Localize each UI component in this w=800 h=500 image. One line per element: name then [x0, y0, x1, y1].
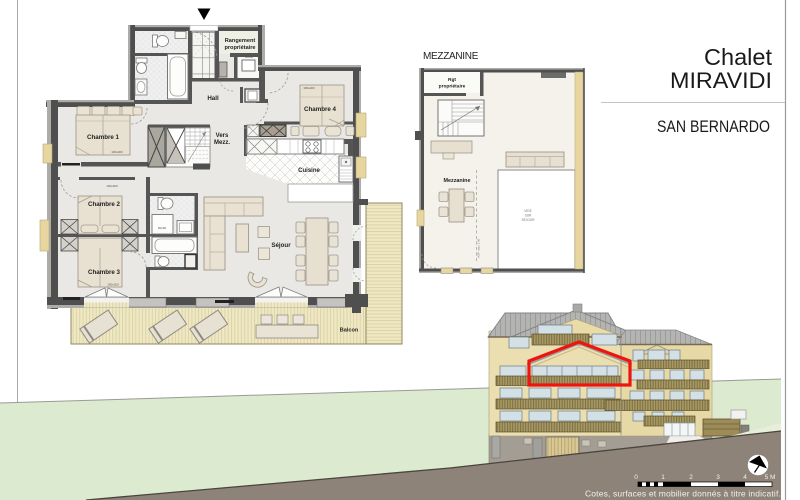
- svg-text:3: 3: [716, 474, 720, 481]
- svg-text:Cotes, surfaces et mobilier do: Cotes, surfaces et mobilier donnés à tit…: [585, 489, 781, 499]
- svg-text:180x200: 180x200: [303, 86, 315, 90]
- svg-text:4: 4: [743, 474, 747, 481]
- svg-text:SEJOUR: SEJOUR: [522, 218, 536, 222]
- svg-text:190x200: 190x200: [111, 150, 123, 154]
- svg-text:90x90: 90x90: [158, 226, 167, 230]
- svg-text:190x200: 190x200: [106, 184, 118, 188]
- svg-text:Rgt: Rgt: [448, 77, 456, 83]
- svg-text:propriétaire: propriétaire: [224, 45, 255, 51]
- svg-text:propriétaire: propriétaire: [439, 84, 466, 90]
- svg-text:HSP max 1.50: HSP max 1.50: [477, 238, 481, 258]
- svg-text:5 M: 5 M: [765, 474, 776, 481]
- svg-text:SAN BERNARDO: SAN BERNARDO: [657, 117, 770, 136]
- svg-text:Mezz.: Mezz.: [214, 140, 230, 146]
- svg-text:MIRAVIDI: MIRAVIDI: [670, 68, 772, 93]
- svg-text:Chambre 1: Chambre 1: [87, 134, 120, 141]
- svg-text:2: 2: [689, 474, 693, 481]
- svg-text:90x80: 90x80: [245, 55, 254, 59]
- svg-text:Hall: Hall: [207, 95, 219, 102]
- svg-text:0: 0: [634, 474, 638, 481]
- svg-text:Mezzanine: Mezzanine: [444, 178, 471, 184]
- svg-text:Chalet: Chalet: [704, 44, 773, 70]
- svg-text:1: 1: [661, 474, 665, 481]
- svg-text:Chambre 3: Chambre 3: [88, 269, 121, 276]
- svg-text:Séjour: Séjour: [271, 242, 291, 249]
- svg-text:Balcon: Balcon: [340, 328, 359, 334]
- svg-text:Chambre 2: Chambre 2: [88, 201, 121, 208]
- svg-text:Vers: Vers: [216, 133, 229, 139]
- svg-text:190x200: 190x200: [107, 283, 119, 287]
- svg-text:Chambre 4: Chambre 4: [304, 106, 337, 113]
- svg-text:MEZZANINE: MEZZANINE: [423, 51, 479, 62]
- svg-text:Cuisine: Cuisine: [298, 168, 320, 174]
- svg-text:SUR: SUR: [525, 214, 532, 218]
- svg-text:VIDE: VIDE: [524, 209, 531, 213]
- svg-text:Rangement: Rangement: [225, 38, 256, 44]
